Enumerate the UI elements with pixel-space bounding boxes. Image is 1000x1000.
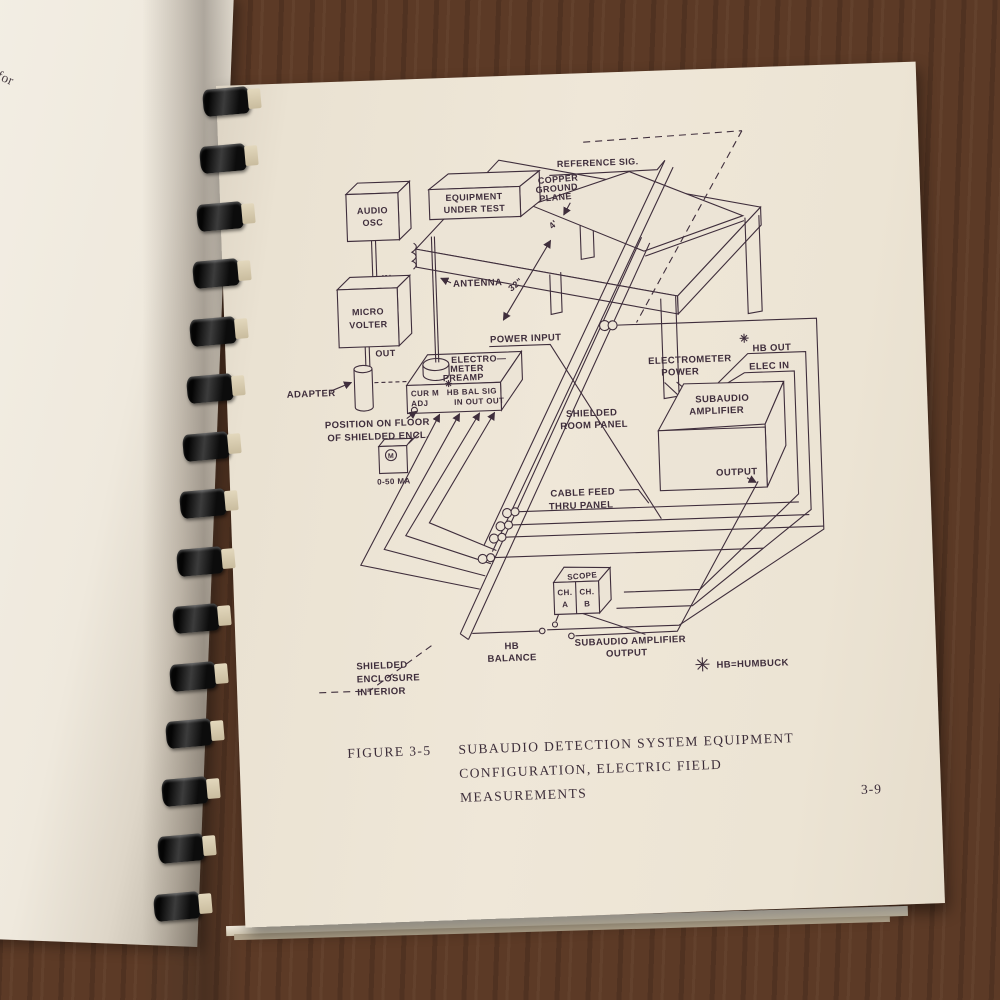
binding-coil — [179, 488, 228, 519]
label-subaudio-amp-output: SUBAUDIO AMPLIFIER — [574, 634, 686, 649]
torn-edge — [412, 243, 417, 269]
label-cable-feed-2: THRU PANEL — [549, 499, 614, 512]
hb-out-asterisk-icon — [739, 334, 748, 343]
hb-balance-wire — [472, 631, 539, 633]
label-shielded-room-panel: SHIELDED — [566, 407, 618, 420]
label-position-on-floor: POSITION ON FLOOR — [325, 417, 430, 432]
label-preamp-cur-m: CUR M — [411, 388, 440, 398]
binding-coil — [165, 718, 214, 749]
figure-number: FIGURE 3-5 — [347, 739, 434, 814]
page-number: 3-9 — [861, 781, 883, 798]
text-fragment: in its place the — [0, 462, 14, 605]
label-adapter: ADAPTER — [287, 388, 336, 401]
wire-c3 — [506, 526, 824, 537]
subaudio-amplifier-box: SUBAUDIO AMPLIFIER OUTPUT — [657, 380, 788, 490]
label-equipment-under-test: EQUIPMENT — [445, 191, 503, 203]
label-hb-balance-2: BALANCE — [487, 652, 537, 665]
label-equipment-under-test-2: UNDER TEST — [444, 203, 506, 215]
microvolter-box: MICRO VOLTER — [337, 275, 412, 348]
wire-c4 — [495, 548, 764, 557]
humbuck-asterisk-icon — [695, 657, 709, 671]
label-electrometer-power-2: POWER — [661, 366, 699, 378]
label-cable-feed: CABLE FEED — [550, 486, 615, 499]
label-meter-m: M — [388, 453, 394, 460]
label-reference-sig: REFERENCE SIG. — [557, 156, 639, 169]
label-shielded-enclosure-3: INTERIOR — [357, 686, 406, 699]
label-output: OUTPUT — [716, 466, 758, 478]
label-subaudio-amplifier-2: AMPLIFIER — [689, 405, 744, 418]
label-antenna: ANTENNA — [453, 277, 503, 290]
binding-coil — [157, 833, 206, 864]
amp-output-terminal — [569, 633, 575, 639]
osc-cable-2 — [375, 241, 376, 277]
label-power-input: POWER INPUT — [490, 332, 562, 345]
audio-osc-box: AUDIO OSC — [345, 181, 411, 241]
label-meter-range: 0-50 MA — [377, 476, 411, 486]
label-hb-balance: HB — [504, 641, 519, 653]
label-ch-b: CH. — [579, 587, 594, 597]
label-out: OUT — [375, 348, 396, 359]
label-preamp-in-out-out: IN OUT OUT — [454, 396, 505, 407]
wire-c2 — [512, 515, 809, 525]
label-subaudio-amplifier: SUBAUDIO — [695, 393, 749, 406]
label-microvolter: MICRO — [352, 306, 384, 317]
binding-coil — [202, 86, 251, 117]
label-ch-b-2: B — [584, 599, 590, 608]
label-electrometer-power: ELECTROMETER — [648, 353, 732, 367]
label-shielded-room-panel-2: ROOM PANEL — [560, 419, 628, 432]
binding-coil — [199, 143, 248, 174]
label-humbuck-note: HB=HUMBUCK — [716, 657, 789, 671]
hb-balance-terminal — [539, 628, 545, 634]
binding-coil — [186, 373, 235, 404]
label-shielded-enclosure-2: ENCLOSURE — [357, 672, 421, 685]
label-microvolter-2: VOLTER — [349, 319, 388, 330]
wall-top-connector — [599, 320, 617, 331]
binding-coil — [153, 891, 202, 922]
cable-feedthru-connectors — [476, 508, 520, 564]
binding-coil — [189, 316, 238, 347]
figure-diagram: EQUIPMENT UNDER TEST REFERENCE SIG. POWE… — [258, 106, 919, 748]
binding-coil — [172, 603, 221, 634]
binding-coil — [169, 661, 218, 692]
binding-coil — [176, 546, 225, 577]
label-ch-a-2: A — [562, 600, 568, 609]
binding-coil — [192, 258, 241, 289]
label-subaudio-amp-output-2: OUTPUT — [606, 647, 648, 659]
binding-coil — [182, 431, 231, 462]
label-position-on-floor-2: OF SHIELDED ENCL. — [327, 430, 429, 445]
label-ch-a: CH. — [557, 588, 572, 598]
label-shielded-enclosure: SHIELDED — [356, 660, 408, 673]
binding-coil — [196, 201, 245, 232]
right-page: EQUIPMENT UNDER TEST REFERENCE SIG. POWE… — [216, 62, 945, 928]
antenna-arrow — [441, 278, 451, 283]
scope-cha-lead — [556, 614, 559, 621]
adapter-dashed-link — [374, 382, 406, 383]
adapter-cylinder — [354, 365, 374, 411]
scope-box: SCOPE CH. A CH. B — [553, 566, 612, 615]
scope-cha-terminal — [552, 622, 557, 627]
adapter-arrow — [330, 382, 351, 391]
label-audio-osc-2: OSC — [362, 217, 383, 228]
label-audio-osc: AUDIO — [357, 205, 388, 216]
binding-coil — [161, 776, 210, 807]
label-hb-out: HB OUT — [752, 342, 791, 354]
equipment-under-test-box: EQUIPMENT UNDER TEST — [428, 171, 541, 220]
osc-cable — [371, 241, 372, 277]
figure-caption: FIGURE 3-5 SUBAUDIO DETECTION SYSTEM EQU… — [347, 726, 796, 814]
label-preamp-hb-bal-sig: HB BAL SIG — [447, 386, 497, 397]
label-elec-in: ELEC IN — [749, 360, 790, 372]
